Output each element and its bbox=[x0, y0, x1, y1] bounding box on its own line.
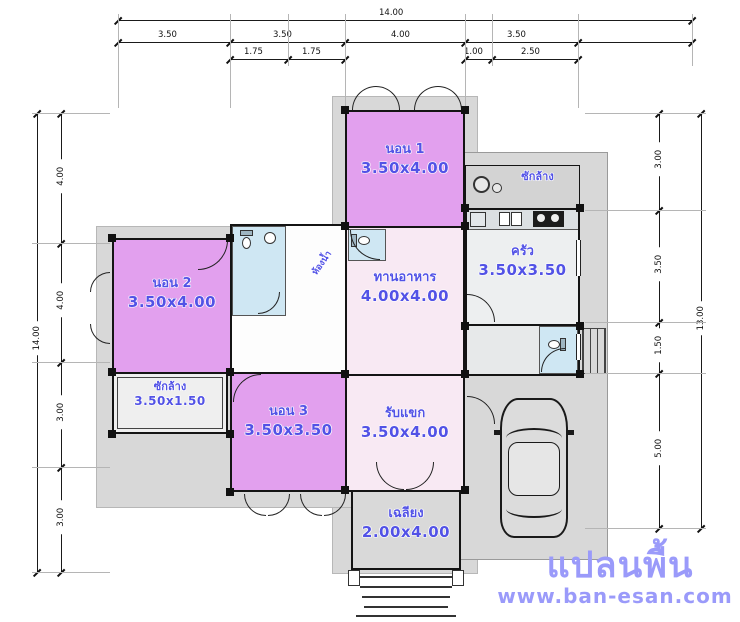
witness-line bbox=[585, 373, 706, 374]
column-marker bbox=[108, 234, 116, 242]
label-bedroom1: นอน 1 3.50x4.00 bbox=[345, 142, 465, 178]
dim-top-sub3: 1.00 bbox=[463, 48, 484, 57]
watermark-site: www.ban-esan.com bbox=[495, 584, 735, 608]
column-marker bbox=[461, 222, 469, 230]
bedroom2-size: 3.50x4.00 bbox=[112, 293, 232, 313]
living-name: รับแขก bbox=[345, 406, 465, 423]
dim-left-3: 3.00 bbox=[57, 395, 66, 429]
washyard-name: ซักล้าง bbox=[495, 170, 580, 184]
window-symbol bbox=[576, 240, 581, 276]
door-arc-icon bbox=[438, 86, 462, 110]
porch-name: เฉลียง bbox=[351, 506, 461, 523]
witness-line bbox=[585, 528, 706, 529]
bedroom3-name: นอน 3 bbox=[230, 404, 347, 421]
sink-icon bbox=[264, 232, 276, 244]
column-marker bbox=[226, 488, 234, 496]
witness-line bbox=[32, 467, 110, 468]
bedroom1-size: 3.50x4.00 bbox=[345, 159, 465, 179]
car-rear-icon bbox=[506, 500, 562, 518]
witness-line bbox=[118, 14, 119, 66]
witness-line bbox=[32, 113, 110, 114]
porch-size: 2.00x4.00 bbox=[351, 523, 461, 543]
dining-name: ทานอาหาร bbox=[345, 270, 465, 287]
dining-size: 4.00x4.00 bbox=[345, 287, 465, 307]
witness-line bbox=[492, 14, 493, 66]
column-marker bbox=[341, 370, 349, 378]
dim-left-1: 4.00 bbox=[57, 159, 66, 193]
door-arc-icon bbox=[352, 86, 376, 110]
stairs-icon bbox=[362, 596, 450, 598]
witness-line bbox=[230, 66, 231, 108]
dim-left-total: 14.00 bbox=[33, 321, 42, 355]
witness-line bbox=[288, 14, 289, 66]
laundry-name: ซักล้าง bbox=[114, 380, 226, 394]
door-arc-icon bbox=[376, 86, 400, 110]
dimension-line bbox=[118, 42, 692, 43]
stove-burner-icon bbox=[537, 214, 545, 222]
dim-left-2: 4.00 bbox=[57, 283, 66, 317]
stairs-icon bbox=[582, 328, 606, 374]
dimension-line bbox=[465, 59, 578, 60]
witness-line bbox=[32, 572, 110, 573]
column-marker bbox=[576, 204, 584, 212]
label-porch: เฉลียง 2.00x4.00 bbox=[351, 506, 461, 542]
dim-top-sub1: 1.75 bbox=[243, 48, 264, 57]
stair-rail bbox=[348, 570, 360, 586]
column-marker bbox=[461, 106, 469, 114]
label-bedroom2: นอน 2 3.50x4.00 bbox=[112, 276, 232, 312]
bedroom2-name: นอน 2 bbox=[112, 276, 232, 293]
witness-line bbox=[345, 14, 346, 66]
column-marker bbox=[461, 204, 469, 212]
dim-top-1: 3.50 bbox=[157, 31, 178, 40]
dim-right-2: 3.50 bbox=[655, 247, 664, 281]
column-marker bbox=[341, 222, 349, 230]
column-marker bbox=[108, 430, 116, 438]
witness-line bbox=[465, 66, 466, 108]
column-marker bbox=[226, 234, 234, 242]
dim-top-sub2: 1.75 bbox=[301, 48, 322, 57]
column-marker bbox=[461, 370, 469, 378]
car-roof-icon bbox=[508, 442, 560, 496]
column-marker bbox=[461, 322, 469, 330]
stair-rail bbox=[452, 570, 464, 586]
label-living: รับแขก 3.50x4.00 bbox=[345, 406, 465, 442]
label-washyard: ซักล้าง bbox=[495, 170, 580, 184]
label-dining: ทานอาหาร 4.00x4.00 bbox=[345, 270, 465, 306]
door-arc-icon bbox=[90, 272, 110, 292]
stairs-icon bbox=[358, 576, 454, 578]
window-symbol bbox=[576, 334, 581, 360]
label-kitchen: ครัว 3.50x3.50 bbox=[465, 244, 580, 280]
dim-left-4: 3.00 bbox=[57, 500, 66, 534]
dim-top-total: 14.00 bbox=[378, 9, 404, 18]
witness-line bbox=[345, 66, 346, 108]
living-size: 3.50x4.00 bbox=[345, 423, 465, 443]
column-marker bbox=[576, 322, 584, 330]
stairs-icon bbox=[364, 606, 448, 608]
car-mirror-icon bbox=[494, 430, 500, 435]
dim-right-1: 3.00 bbox=[655, 142, 664, 176]
dim-top-4: 3.50 bbox=[506, 31, 527, 40]
kitchen-name: ครัว bbox=[465, 244, 580, 261]
witness-line bbox=[230, 14, 231, 66]
stairs-icon bbox=[360, 586, 452, 588]
laundry-size: 3.50x1.50 bbox=[114, 394, 226, 410]
door-arc-icon bbox=[244, 494, 266, 516]
door-arc-icon bbox=[90, 324, 110, 344]
toilet-icon bbox=[548, 340, 560, 349]
door-arc-icon bbox=[268, 494, 290, 516]
witness-line bbox=[585, 113, 706, 114]
fridge-icon bbox=[470, 212, 486, 227]
toilet-icon bbox=[242, 237, 251, 249]
dim-top-3: 4.00 bbox=[390, 31, 411, 40]
kitchen-sink-icon bbox=[499, 212, 510, 226]
label-laundry: ซักล้าง 3.50x1.50 bbox=[114, 380, 226, 410]
kitchen-size: 3.50x3.50 bbox=[465, 261, 580, 281]
witness-line bbox=[32, 362, 110, 363]
witness-line bbox=[465, 14, 466, 66]
label-bedroom3: นอน 3 3.50x3.50 bbox=[230, 404, 347, 440]
bedroom3-size: 3.50x3.50 bbox=[230, 421, 347, 441]
dim-right-4: 5.00 bbox=[655, 431, 664, 465]
witness-line bbox=[578, 14, 579, 66]
witness-line bbox=[585, 322, 706, 323]
dim-right-3: 1.50 bbox=[655, 328, 664, 362]
dim-top-sub4: 2.50 bbox=[520, 48, 541, 57]
car-mirror-icon bbox=[568, 430, 574, 435]
column-marker bbox=[226, 368, 234, 376]
floor-plan-canvas: 14.00 3.50 3.50 4.00 3.50 1.75 1.75 1.00… bbox=[0, 0, 740, 622]
toilet-icon bbox=[240, 230, 253, 236]
door-arc-icon bbox=[414, 86, 438, 110]
stove-burner-icon bbox=[551, 214, 559, 222]
kitchen-sink-icon bbox=[511, 212, 522, 226]
witness-line bbox=[585, 210, 706, 211]
witness-line bbox=[32, 243, 110, 244]
dim-top-2: 3.50 bbox=[272, 31, 293, 40]
dimension-line bbox=[118, 20, 692, 21]
column-marker bbox=[341, 486, 349, 494]
bedroom1-name: นอน 1 bbox=[345, 142, 465, 159]
column-marker bbox=[108, 368, 116, 376]
dim-right-total: 13.00 bbox=[697, 301, 706, 335]
witness-line bbox=[118, 66, 119, 108]
water-jar-icon bbox=[492, 183, 502, 193]
column-marker bbox=[226, 430, 234, 438]
column-marker bbox=[576, 370, 584, 378]
stairs-icon bbox=[356, 615, 456, 617]
door-arc-icon bbox=[300, 494, 322, 516]
water-jar-icon bbox=[473, 176, 490, 193]
witness-line bbox=[578, 66, 579, 108]
witness-line bbox=[692, 14, 693, 66]
column-marker bbox=[461, 486, 469, 494]
column-marker bbox=[341, 106, 349, 114]
